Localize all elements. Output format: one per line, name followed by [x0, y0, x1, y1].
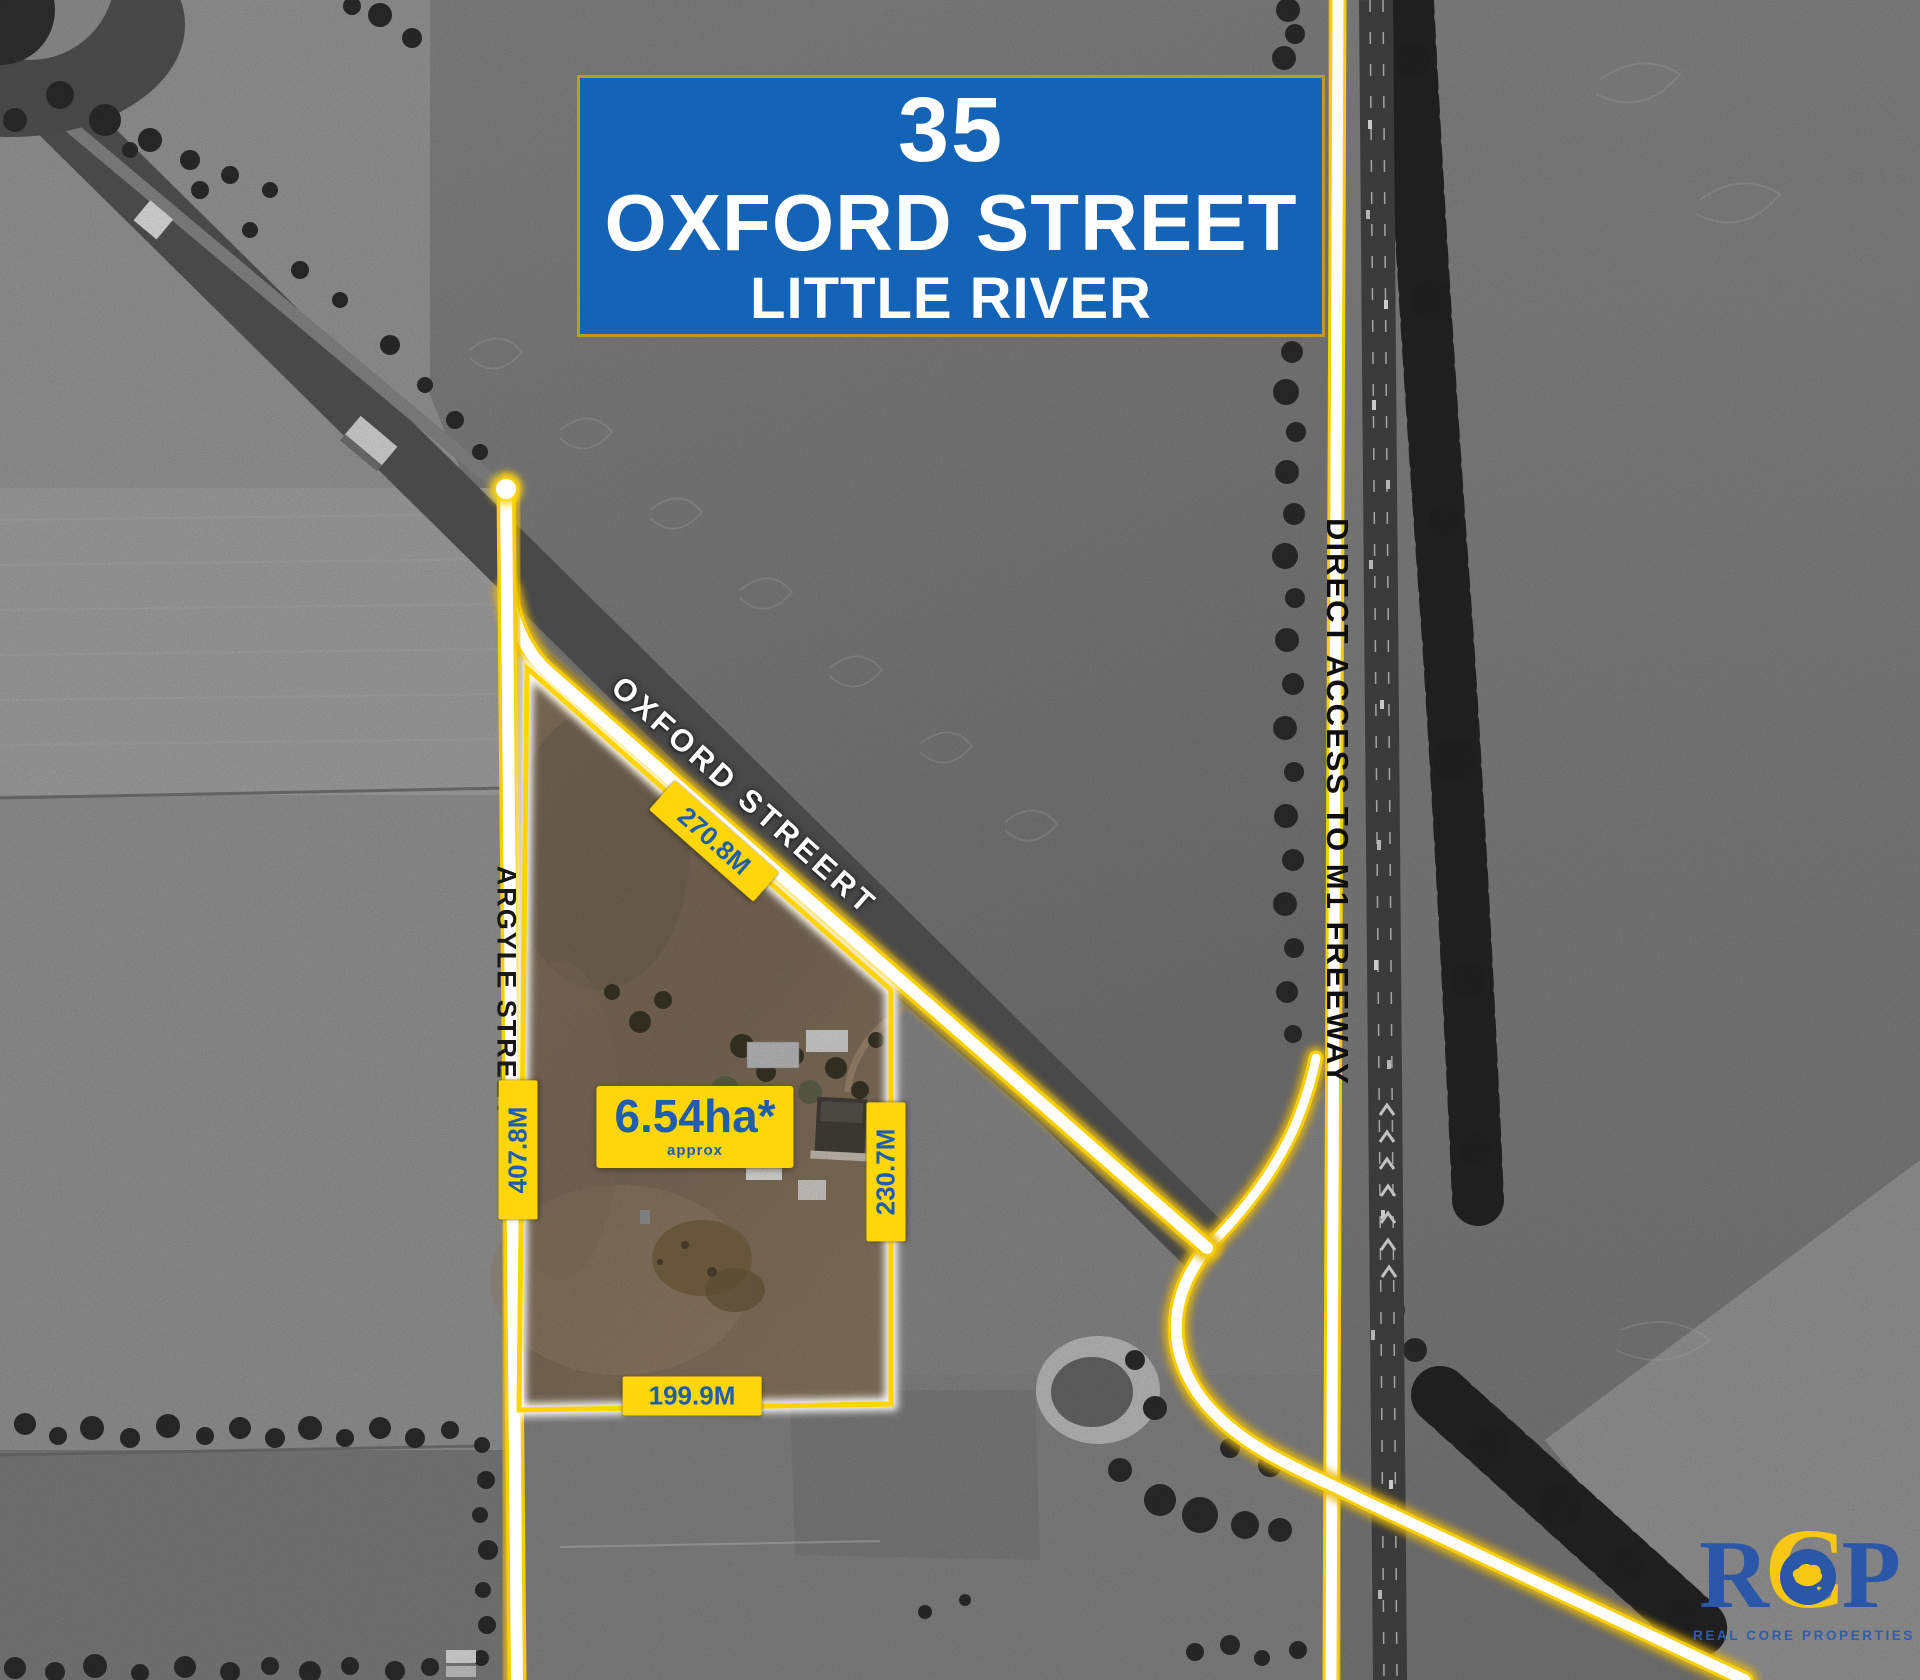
land-area-badge: 6.54ha* approx [596, 1086, 793, 1168]
logo-letter-p: P [1842, 1526, 1901, 1623]
agency-logo: R C P REAL CORE PROPERTIES [1693, 1512, 1907, 1643]
globe-icon [1780, 1549, 1836, 1605]
measurement-east-boundary: 230.7M [867, 1103, 906, 1242]
australia-icon [1789, 1561, 1827, 1593]
land-area-value: 6.54ha* [614, 1093, 775, 1139]
logo-letter-r: R [1699, 1526, 1769, 1623]
address-banner: 35 OXFORD STREET LITTLE RIVER [577, 75, 1325, 337]
measurement-west-boundary: 407.8M [499, 1081, 538, 1220]
land-area-note: approx [614, 1142, 775, 1159]
freeway-access-label: DIRECT ACCESS TO M1 FREEWAY [1319, 518, 1355, 1086]
property-aerial-advert: 35 OXFORD STREET LITTLE RIVER OXFORD STR… [0, 0, 1920, 1680]
street-name: OXFORD STREET [604, 182, 1297, 264]
agency-logo-letters: R C P [1693, 1512, 1907, 1626]
measurement-south-boundary: 199.9M [623, 1377, 762, 1416]
street-number: 35 [898, 84, 1004, 178]
suburb-name: LITTLE RIVER [750, 269, 1152, 328]
